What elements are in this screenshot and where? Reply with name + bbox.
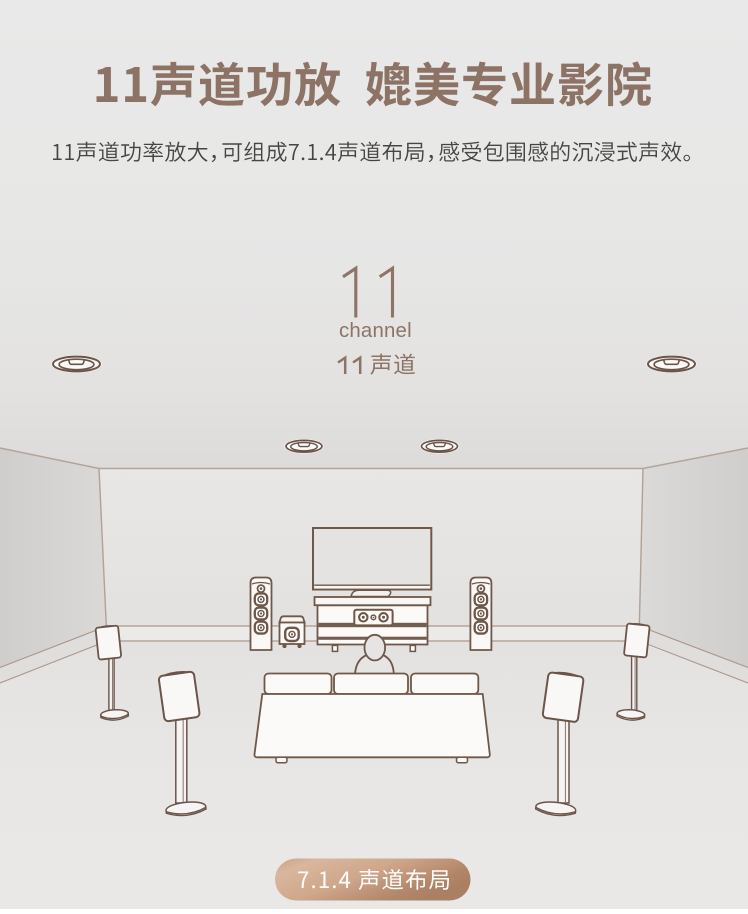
- svg-text:channel: channel: [339, 320, 412, 342]
